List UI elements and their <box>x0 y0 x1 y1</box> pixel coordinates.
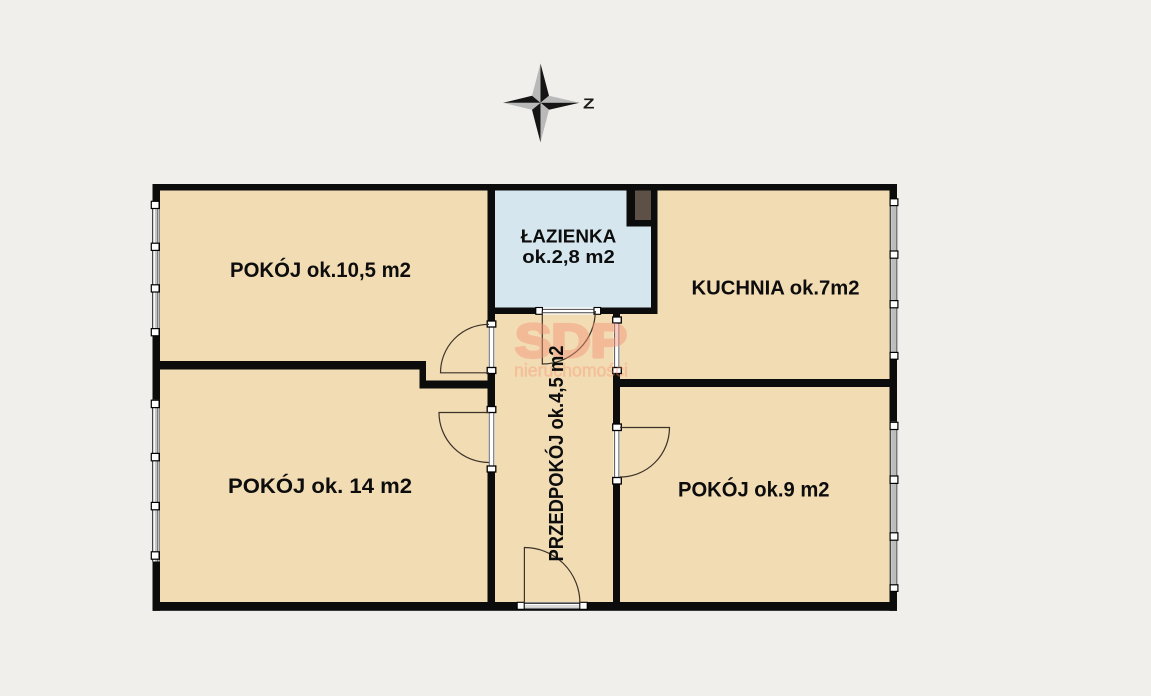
svg-text:ŁAZIENKA: ŁAZIENKA <box>521 226 617 247</box>
svg-text:POKÓJ ok.10,5 m2: POKÓJ ok.10,5 m2 <box>230 258 411 282</box>
svg-text:POKÓJ ok.9 m2: POKÓJ ok.9 m2 <box>678 478 830 502</box>
svg-text:Z: Z <box>583 95 595 112</box>
svg-text:nieruchomości: nieruchomości <box>514 361 628 381</box>
svg-text:PRZEDPOKÓJ ok.4,5 m2: PRZEDPOKÓJ ok.4,5 m2 <box>544 346 568 562</box>
svg-text:POKÓJ ok. 14 m2: POKÓJ ok. 14 m2 <box>228 474 412 498</box>
svg-text:SDP: SDP <box>515 314 627 367</box>
svg-text:KUCHNIA ok.7m2: KUCHNIA ok.7m2 <box>692 278 860 300</box>
svg-text:ok.2,8 m2: ok.2,8 m2 <box>522 246 615 267</box>
